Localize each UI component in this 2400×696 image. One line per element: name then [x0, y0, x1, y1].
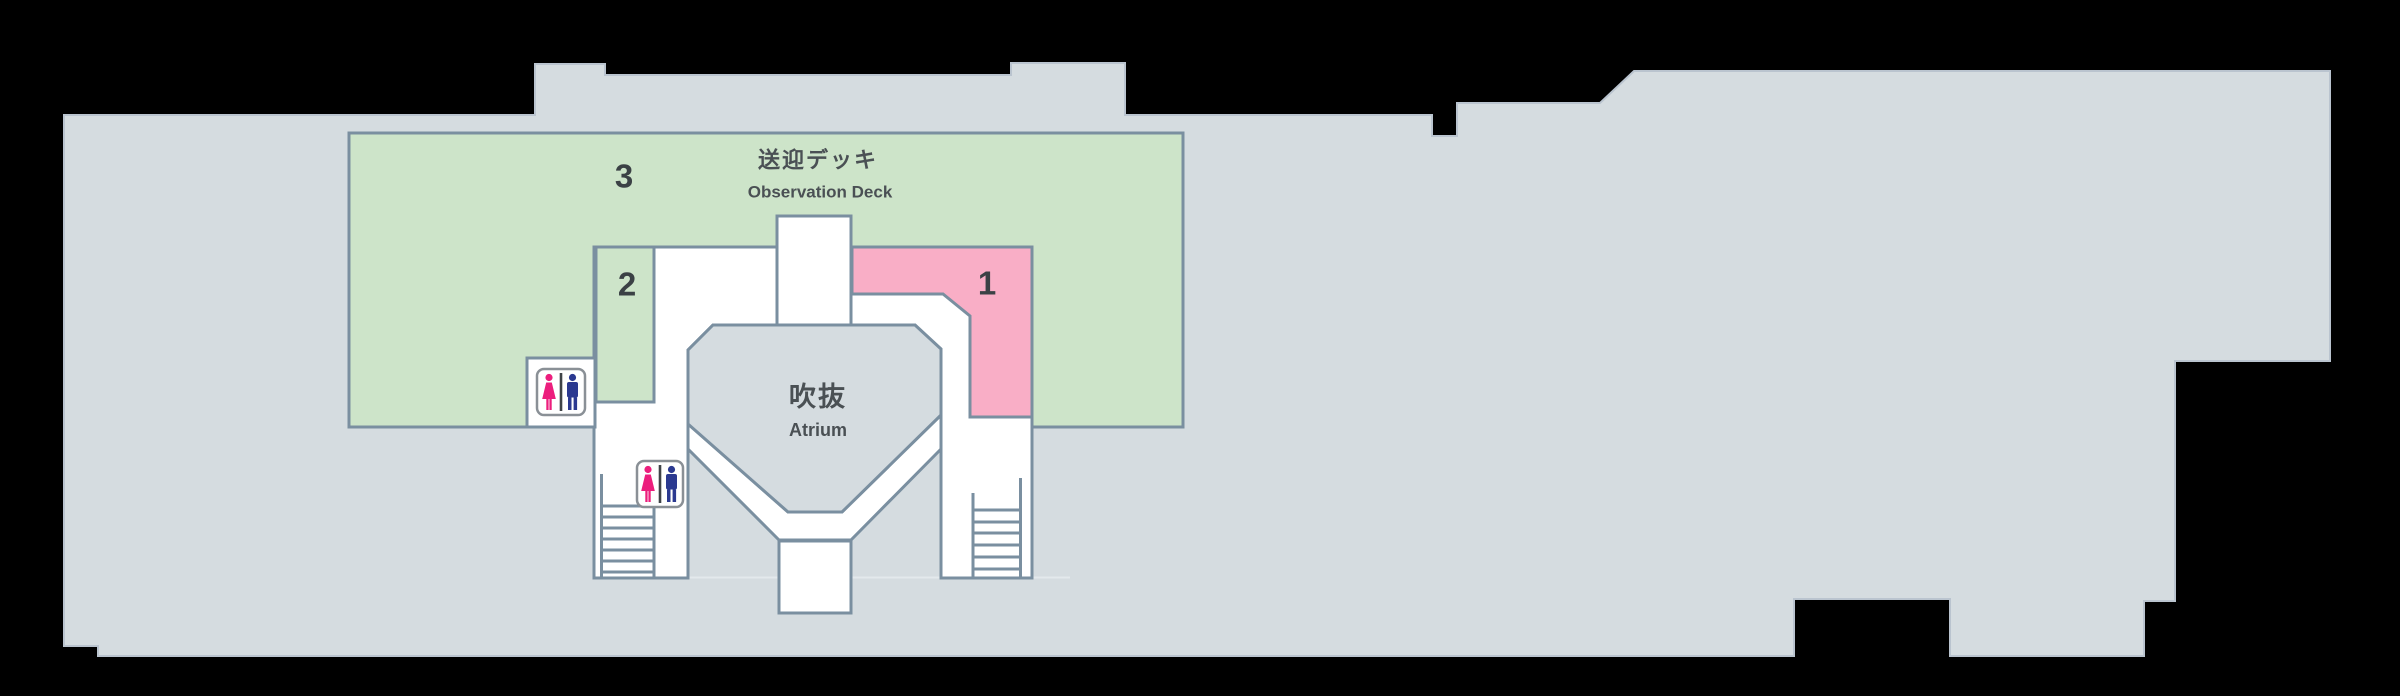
- floor-map: 3 送迎デッキ Observation Deck 2 1 吹抜 Atrium: [0, 0, 2400, 696]
- floor-map-stage: 3 送迎デッキ Observation Deck 2 1 吹抜 Atrium: [0, 0, 2400, 696]
- deck-name-jp: 送迎デッキ: [758, 148, 878, 173]
- restroom-icon: [537, 369, 585, 415]
- restroom-divider: [560, 373, 563, 411]
- atrium-name-en: Atrium: [789, 420, 847, 440]
- atrium-name-jp: 吹抜: [789, 382, 847, 412]
- room-2-number: 2: [618, 266, 636, 303]
- deck-name-en: Observation Deck: [748, 183, 893, 202]
- room-3-number: 3: [615, 158, 633, 195]
- elevator-box: [779, 541, 851, 613]
- restroom-divider: [659, 465, 662, 503]
- room-1-number: 1: [978, 265, 996, 302]
- restroom-icon: [637, 461, 683, 507]
